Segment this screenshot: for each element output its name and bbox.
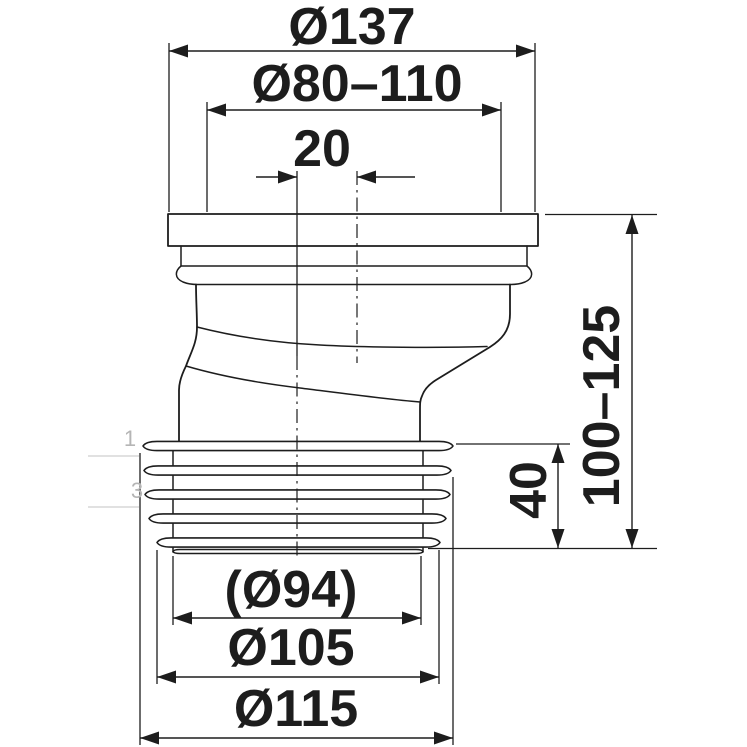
margin-mark-1: 1: [124, 426, 136, 451]
arrowhead-left: [207, 104, 226, 117]
arrowhead-bottom: [626, 529, 639, 548]
arrowhead-right: [420, 671, 439, 684]
part-outline: [143, 214, 538, 554]
body-right-edge: [420, 285, 510, 445]
arrowhead-left: [140, 732, 159, 745]
dim-inlet-range: Ø80–110: [207, 55, 501, 212]
flange-step-band: [181, 246, 527, 266]
lower-transition-seam: [186, 366, 420, 402]
outlet-pipe-sides: [173, 449, 423, 552]
outlet-bottom-rim: [173, 550, 423, 554]
arrowhead-top: [552, 444, 565, 463]
arrowhead-left: [157, 671, 176, 684]
arrowhead-left: [169, 45, 188, 58]
seal-fin-5: [157, 538, 440, 547]
arrowhead-right: [434, 732, 453, 745]
extension-lines: [207, 102, 501, 212]
label-flange-diameter: Ø137: [288, 0, 415, 56]
arrowhead-right: [482, 104, 501, 117]
technical-drawing-page: Ø137 Ø80–110 20 100–125 40 (Ø94): [0, 0, 747, 747]
label-outlet-mid: Ø105: [227, 619, 354, 677]
margin-artifacts: 1 3: [88, 426, 143, 507]
arrowhead-left: [173, 612, 192, 625]
dim-outlet-bore: (Ø94): [173, 556, 421, 625]
label-offset: 20: [293, 120, 351, 178]
label-inlet-range: Ø80–110: [251, 55, 462, 113]
label-height-range: 100–125: [573, 305, 631, 507]
drawing-canvas: Ø137 Ø80–110 20 100–125 40 (Ø94): [0, 0, 747, 747]
label-outlet-max: Ø115: [234, 680, 358, 738]
arrowhead-top: [626, 215, 639, 234]
flange-outline: [168, 214, 538, 246]
arrowhead-right: [516, 45, 535, 58]
label-seal-height: 40: [500, 461, 558, 519]
dim-seal-height: 40: [456, 444, 570, 548]
margin-mark-3: 3: [131, 478, 143, 503]
arrowhead-right: [357, 171, 376, 184]
centerlines: [297, 171, 357, 559]
upper-transition-seam: [197, 327, 487, 347]
body-left-edge: [179, 285, 197, 445]
flange-lip: [176, 266, 531, 285]
arrowhead-bottom: [552, 529, 565, 548]
seal-fin-1: [143, 441, 453, 450]
label-outlet-bore: (Ø94): [225, 561, 358, 619]
seal-fins: [143, 441, 453, 547]
arrowhead-right: [402, 612, 421, 625]
dim-offset: 20: [256, 120, 415, 184]
